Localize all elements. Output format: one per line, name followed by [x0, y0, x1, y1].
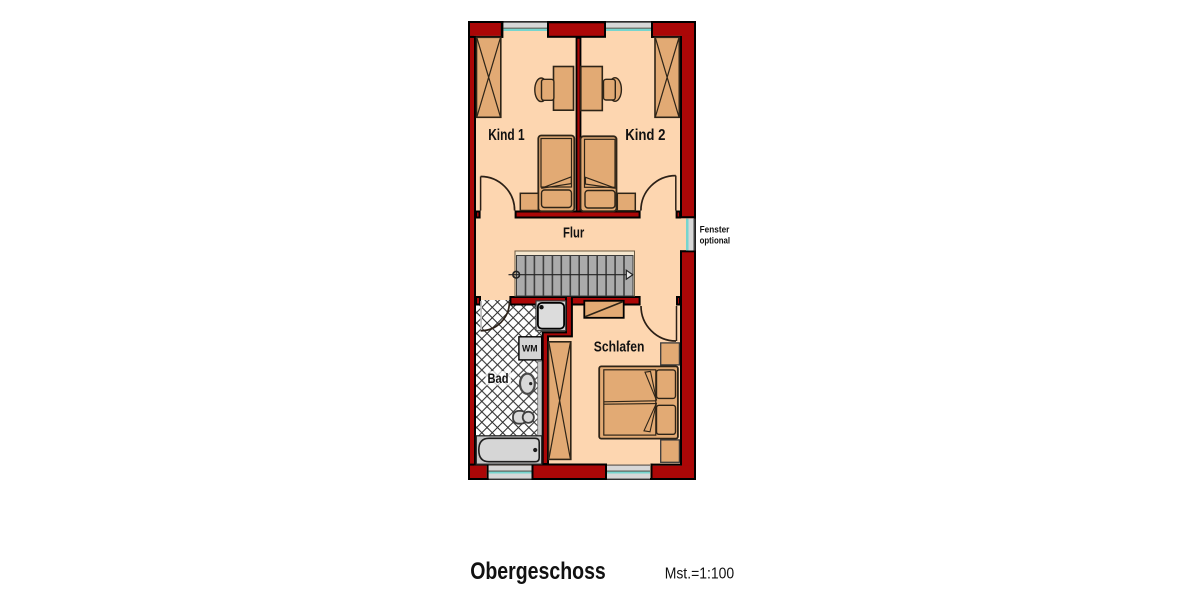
svg-text:Bad: Bad — [488, 371, 509, 386]
svg-text:Schlafen: Schlafen — [594, 339, 645, 356]
svg-text:Kind 2: Kind 2 — [625, 127, 665, 144]
svg-text:Fenster: Fenster — [700, 225, 730, 235]
svg-text:optional: optional — [700, 235, 731, 245]
svg-text:WM: WM — [522, 344, 538, 354]
svg-text:Kind 1: Kind 1 — [488, 127, 525, 144]
svg-text:Flur: Flur — [563, 225, 584, 242]
svg-text:Mst.=1:100: Mst.=1:100 — [665, 565, 735, 582]
svg-text:Obergeschoss: Obergeschoss — [470, 558, 606, 585]
